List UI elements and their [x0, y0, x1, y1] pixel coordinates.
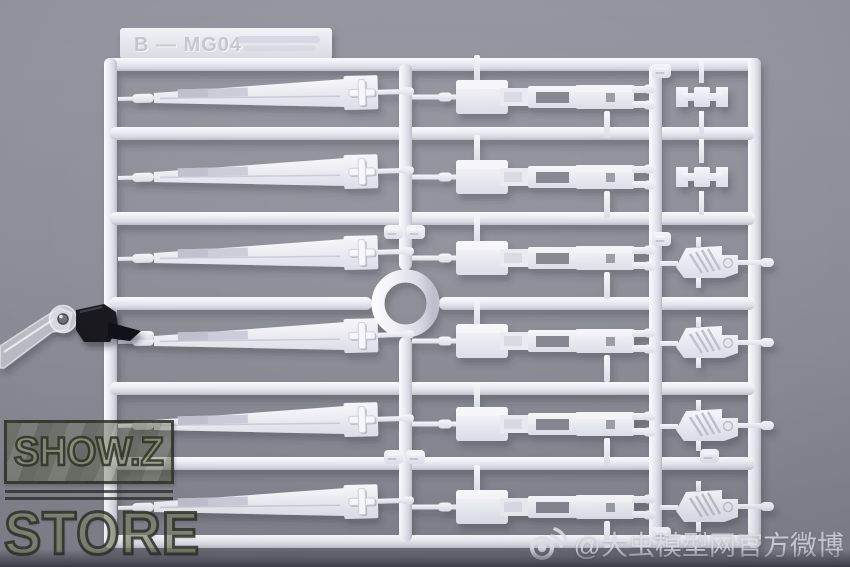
sprue-body: B — MG04	[104, 28, 774, 548]
joint-screw	[58, 314, 68, 324]
blade-part	[118, 74, 415, 116]
hinge-part	[412, 216, 656, 299]
sprue-tag: B — MG04	[120, 28, 332, 59]
bracket-part	[676, 139, 728, 215]
hinge-part	[412, 299, 656, 382]
display-stand-clamp	[0, 304, 141, 368]
blade-part	[118, 317, 415, 359]
floor-shadow	[0, 549, 850, 567]
hinge-part	[412, 135, 656, 218]
photo-scene: B — MG04	[0, 0, 850, 567]
blade-part	[118, 153, 415, 195]
blade-part	[118, 234, 415, 276]
showz-watermark-box: SHOW.Z	[4, 420, 174, 484]
showz-watermark-divider	[5, 490, 173, 500]
showz-store-watermark: SHOW.Z STORE	[4, 420, 198, 564]
runner-ring	[378, 276, 433, 331]
sprue-tag-text: B — MG04	[134, 34, 242, 56]
showz-watermark-line1: SHOW.Z	[14, 432, 164, 472]
